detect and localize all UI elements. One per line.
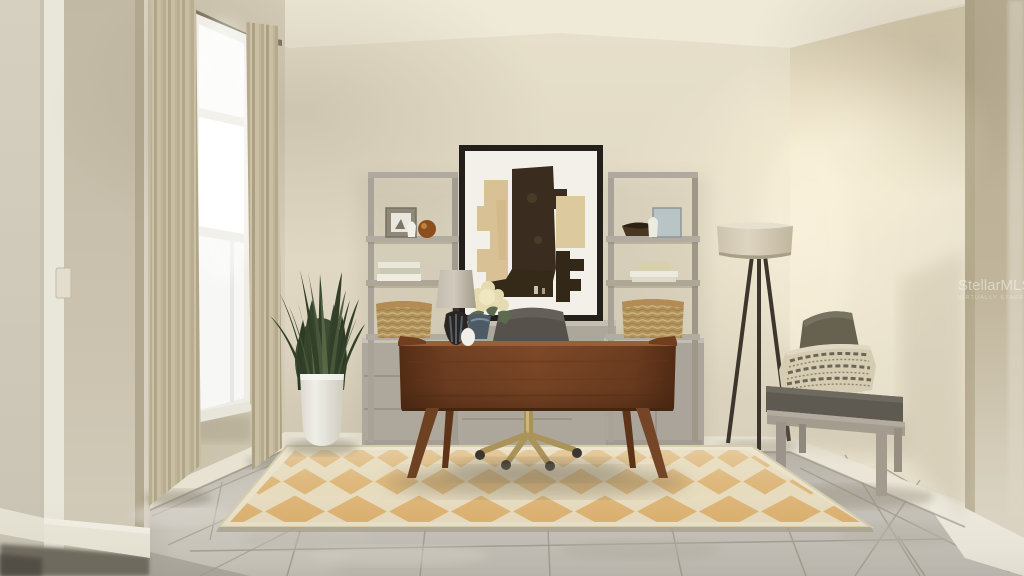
svg-text:VIRTUALLY STAGED: VIRTUALLY STAGED — [958, 295, 1024, 301]
svg-text:StellarMLS: StellarMLS — [958, 277, 1024, 294]
